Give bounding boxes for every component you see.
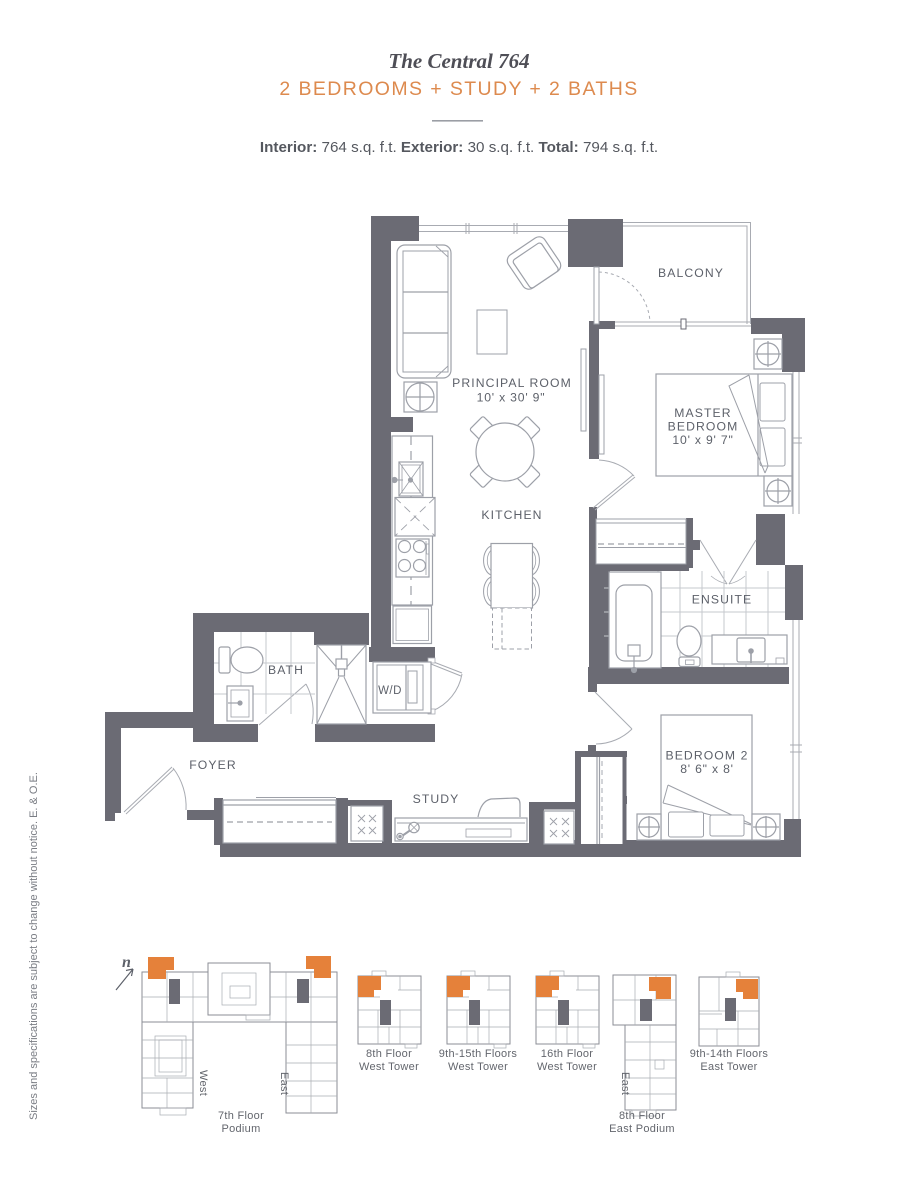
svg-text:16th Floor: 16th Floor: [541, 1048, 594, 1060]
svg-text:9th-15th Floors: 9th-15th Floors: [439, 1048, 518, 1060]
svg-text:West Tower: West Tower: [359, 1061, 419, 1073]
svg-text:n: n: [122, 954, 131, 971]
svg-text:East: East: [278, 1072, 290, 1095]
svg-text:Sizes and specifications are s: Sizes and specifications are subject to …: [28, 772, 40, 1120]
svg-text:PRINCIPAL ROOM: PRINCIPAL ROOM: [452, 376, 572, 390]
svg-text:FOYER: FOYER: [189, 758, 236, 772]
svg-text:10' x 30' 9": 10' x 30' 9": [477, 391, 546, 405]
svg-text:West Tower: West Tower: [448, 1061, 508, 1073]
svg-text:8th Floor: 8th Floor: [366, 1048, 412, 1060]
svg-text:East Tower: East Tower: [700, 1061, 757, 1073]
svg-text:BEDROOM: BEDROOM: [668, 420, 739, 434]
svg-text:7th Floor: 7th Floor: [218, 1110, 264, 1122]
svg-text:BEDROOM 2: BEDROOM 2: [665, 749, 748, 763]
svg-text:East: East: [619, 1072, 631, 1095]
svg-text:Interior: 764 s.q. f.t. Exteri: Interior: 764 s.q. f.t. Exterior: 30 s.q…: [260, 139, 658, 156]
svg-text:10' x 9' 7": 10' x 9' 7": [672, 433, 733, 447]
svg-text:BALCONY: BALCONY: [658, 266, 724, 280]
svg-text:9th-14th Floors: 9th-14th Floors: [690, 1048, 769, 1060]
svg-text:Podium: Podium: [221, 1123, 260, 1135]
svg-text:2 BEDROOMS + STUDY + 2 BATHS: 2 BEDROOMS + STUDY + 2 BATHS: [279, 78, 638, 100]
svg-text:MASTER: MASTER: [674, 406, 731, 420]
svg-text:West: West: [197, 1070, 209, 1096]
svg-text:East Podium: East Podium: [609, 1123, 675, 1135]
svg-text:8' 6" x 8': 8' 6" x 8': [680, 762, 734, 776]
svg-text:STUDY: STUDY: [413, 792, 460, 806]
svg-text:KITCHEN: KITCHEN: [481, 508, 542, 522]
svg-text:BATH: BATH: [268, 663, 304, 677]
svg-text:W/D: W/D: [378, 685, 402, 697]
svg-text:The Central 764: The Central 764: [388, 49, 529, 73]
svg-text:8th Floor: 8th Floor: [619, 1110, 665, 1122]
svg-text:West Tower: West Tower: [537, 1061, 597, 1073]
svg-text:ENSUITE: ENSUITE: [692, 593, 753, 607]
